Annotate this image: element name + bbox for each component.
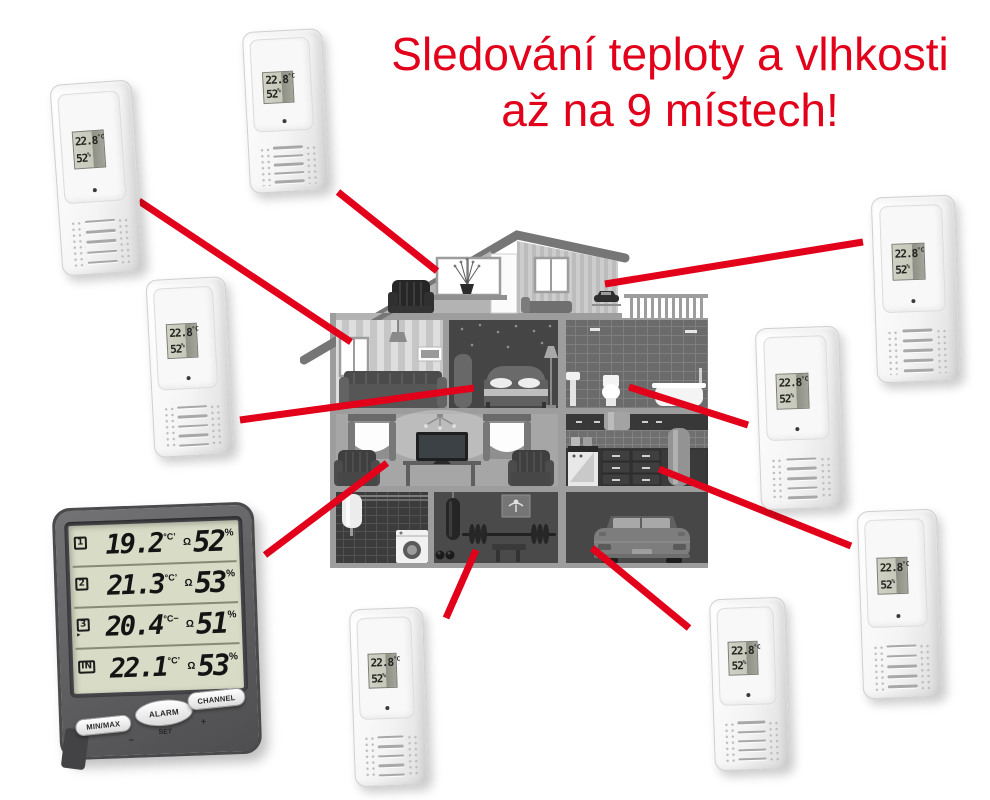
remote-sensor-7: 22.8°C 52% bbox=[755, 326, 845, 511]
humidity-icon: Ω bbox=[186, 619, 194, 630]
sensor-temperature-value: 22.8 bbox=[731, 644, 754, 658]
trend-icon: ’ bbox=[178, 656, 181, 665]
remote-sensor-8: 22.8°C 52% bbox=[871, 195, 961, 384]
sensor-button-dot bbox=[385, 706, 389, 710]
alarm-button: ALARM bbox=[134, 697, 194, 729]
sensor-humidity-value: 52 bbox=[895, 263, 907, 276]
sensor-face: 22.8°C 52% bbox=[249, 37, 314, 133]
sensor-temperature-value: 22.8 bbox=[75, 134, 98, 149]
temperature-value: 22.1 bbox=[109, 654, 167, 683]
balcony bbox=[624, 294, 708, 318]
armchair-left bbox=[334, 450, 380, 486]
sensor-button-dot bbox=[186, 376, 190, 380]
channel-badge: 1 bbox=[74, 536, 87, 549]
sensor-face: 22.8°C 52% bbox=[763, 335, 830, 442]
sensor-temperature-unit: °C bbox=[753, 644, 760, 651]
sensor-temperature-unit: °C bbox=[801, 376, 808, 383]
minmax-button: MIN/MAX bbox=[75, 714, 132, 737]
sensor-temperature-value: 22.8 bbox=[778, 376, 801, 390]
lcd-row-channel-1: 1 19.2 °C’ Ω 52 % bbox=[71, 521, 236, 568]
temperature-unit: °C bbox=[165, 573, 175, 582]
sensor-humidity-unit: % bbox=[906, 263, 910, 270]
bed bbox=[484, 366, 548, 408]
trend-icon: ’ bbox=[175, 573, 178, 582]
sensor-humidity-unit: % bbox=[181, 342, 185, 349]
cooker-hood bbox=[604, 412, 630, 430]
lcd-row-channel-3: 3▸ 20.4 °C− Ω 51 % bbox=[74, 603, 239, 650]
remote-sensor-1: 22.8°C 52% bbox=[242, 28, 330, 194]
sensor-lcd: 22.8°C 52% bbox=[262, 71, 295, 104]
room-bathroom bbox=[566, 320, 708, 408]
sensor-temperature-value: 22.8 bbox=[169, 326, 192, 340]
sensor-temperature-unit: °C bbox=[917, 246, 924, 253]
sensor-face: 22.8°C 52% bbox=[716, 606, 776, 707]
humidity-unit: % bbox=[227, 609, 236, 620]
sensor-face: 22.8°C 52% bbox=[879, 204, 946, 313]
sofa bbox=[339, 371, 447, 408]
sensor-vents bbox=[362, 733, 420, 779]
sensor-lcd: 22.8°C 52% bbox=[71, 130, 106, 170]
poster bbox=[502, 495, 530, 517]
sensor-temperature-value: 22.8 bbox=[880, 561, 903, 575]
headline-line-2: až na 9 místech! bbox=[348, 82, 990, 138]
base-station: 1 19.2 °C’ Ω 52 % 2 21.3 °C’ Ω 53 % 3▸ bbox=[52, 502, 263, 761]
room-kitchen bbox=[566, 412, 708, 486]
temperature-value: 20.4 bbox=[105, 612, 163, 641]
plus-label: + bbox=[201, 716, 207, 726]
minus-label: − bbox=[129, 735, 135, 745]
sensor-humidity-unit: % bbox=[891, 578, 895, 585]
sensor-humidity-value: 52 bbox=[880, 578, 892, 591]
sensor-button-dot bbox=[282, 119, 286, 123]
channel-marker: ▸ bbox=[77, 631, 81, 638]
room-gym bbox=[434, 492, 558, 563]
humidity-value: 53 bbox=[194, 568, 226, 598]
sensor-vents bbox=[769, 455, 834, 502]
trend-icon: − bbox=[173, 614, 179, 623]
temperature-unit: °C bbox=[163, 614, 173, 623]
room-lounge bbox=[336, 320, 447, 408]
sensor-vents bbox=[162, 402, 225, 449]
temperature-unit: °C bbox=[167, 656, 177, 665]
sensor-temperature-unit: °C bbox=[97, 134, 105, 141]
temperature-unit: °C bbox=[163, 532, 173, 541]
room-laundry bbox=[336, 492, 428, 563]
humidity-value: 53 bbox=[197, 651, 229, 681]
set-label: SET bbox=[158, 729, 172, 736]
remote-sensor-2: 22.8°C 52% bbox=[49, 79, 144, 276]
sensor-humidity-unit: % bbox=[382, 672, 386, 679]
sensor-humidity-unit: % bbox=[87, 152, 91, 159]
sensor-lcd: 22.8°C 52% bbox=[728, 641, 759, 676]
product-illustration: Sledování teploty a vlhkosti až na 9 mís… bbox=[0, 0, 990, 800]
headline: Sledování teploty a vlhkosti až na 9 mís… bbox=[348, 26, 990, 138]
console-lcd: 1 19.2 °C’ Ω 52 % 2 21.3 °C’ Ω 53 % 3▸ bbox=[68, 520, 244, 694]
humidity-icon: Ω bbox=[184, 578, 192, 589]
sensor-face: 22.8°C 52% bbox=[356, 616, 415, 720]
sensor-vents bbox=[69, 216, 135, 268]
room-livingroom bbox=[334, 410, 558, 486]
wardrobe bbox=[454, 354, 472, 408]
sensor-button-dot bbox=[912, 299, 916, 303]
sensor-temperature-value: 22.8 bbox=[370, 656, 393, 670]
sensor-face: 22.8°C 52% bbox=[864, 518, 928, 628]
lounge-window bbox=[340, 338, 368, 376]
remote-sensor-5: 22.8°C 52% bbox=[709, 597, 791, 772]
sensor-vents bbox=[257, 143, 320, 186]
sensor-face: 22.8°C 52% bbox=[153, 286, 218, 391]
temperature-value: 21.3 bbox=[106, 571, 164, 600]
lcd-row-indoor: IN 22.1 °C’ Ω 53 % bbox=[76, 644, 241, 691]
humidity-unit: % bbox=[225, 527, 234, 538]
sensor-temperature-unit: °C bbox=[393, 656, 400, 663]
sensor-vents bbox=[722, 719, 781, 763]
sensor-lcd: 22.8°C 52% bbox=[367, 653, 397, 689]
sensor-button-dot bbox=[896, 614, 900, 618]
room-bedroom bbox=[449, 320, 558, 408]
channel-badge: 2 bbox=[75, 577, 88, 590]
sensor-face: 22.8°C 52% bbox=[57, 90, 126, 204]
lcd-row-channel-2: 2 21.3 °C’ Ω 53 % bbox=[73, 562, 238, 609]
sensor-lcd: 22.8°C 52% bbox=[876, 557, 909, 595]
sensor-lcd: 22.8°C 52% bbox=[166, 322, 199, 359]
humidity-value: 51 bbox=[195, 609, 227, 639]
sensor-humidity-unit: % bbox=[743, 659, 747, 666]
remote-sensor-4: 22.8°C 52% bbox=[349, 607, 429, 787]
attic-armchair bbox=[388, 280, 434, 313]
sensor-humidity-value: 52 bbox=[731, 660, 743, 673]
sensor-temperature-unit: °C bbox=[288, 73, 296, 80]
headline-line-1: Sledování teploty a vlhkosti bbox=[348, 26, 990, 82]
sensor-humidity-value: 52 bbox=[76, 152, 88, 166]
humidity-value: 52 bbox=[193, 527, 225, 557]
console-lcd-frame: 1 19.2 °C’ Ω 52 % 2 21.3 °C’ Ω 53 % 3▸ bbox=[64, 516, 248, 698]
remote-sensor-6: 22.8°C 52% bbox=[857, 509, 944, 700]
sensor-humidity-value: 52 bbox=[371, 672, 383, 685]
sensor-button-dot bbox=[93, 188, 97, 192]
sensor-vents bbox=[885, 327, 951, 375]
wall-picture bbox=[418, 347, 442, 361]
sensor-lcd: 22.8°C 52% bbox=[775, 373, 809, 410]
sensor-humidity-unit: % bbox=[790, 392, 794, 399]
sensor-humidity-value: 52 bbox=[779, 393, 791, 406]
sensor-humidity-unit: % bbox=[277, 88, 281, 95]
attic-right-window bbox=[535, 258, 568, 292]
washing-machine bbox=[396, 530, 428, 563]
channel-badge: 3 bbox=[77, 618, 90, 631]
sensor-button-dot bbox=[746, 693, 750, 697]
armchair-right bbox=[508, 450, 554, 486]
humidity-unit: % bbox=[229, 651, 238, 662]
room-garage bbox=[566, 492, 708, 563]
humidity-icon: Ω bbox=[187, 661, 195, 672]
sensor-lcd: 22.8°C 52% bbox=[891, 243, 925, 281]
sensor-vents bbox=[871, 642, 933, 691]
temperature-value: 19.2 bbox=[105, 530, 163, 559]
trend-icon: ’ bbox=[173, 532, 176, 541]
sensor-temperature-unit: °C bbox=[191, 326, 199, 333]
sensor-temperature-value: 22.8 bbox=[265, 73, 288, 87]
fridge bbox=[668, 428, 690, 486]
sensor-temperature-value: 22.8 bbox=[894, 247, 917, 261]
sensor-temperature-unit: °C bbox=[902, 561, 909, 568]
humidity-icon: Ω bbox=[183, 537, 191, 548]
house-illustration bbox=[300, 228, 715, 568]
humidity-unit: % bbox=[226, 568, 235, 579]
channel-badge: IN bbox=[78, 660, 95, 674]
sensor-button-dot bbox=[796, 427, 800, 431]
remote-sensor-3: 22.8°C 52% bbox=[145, 276, 234, 458]
